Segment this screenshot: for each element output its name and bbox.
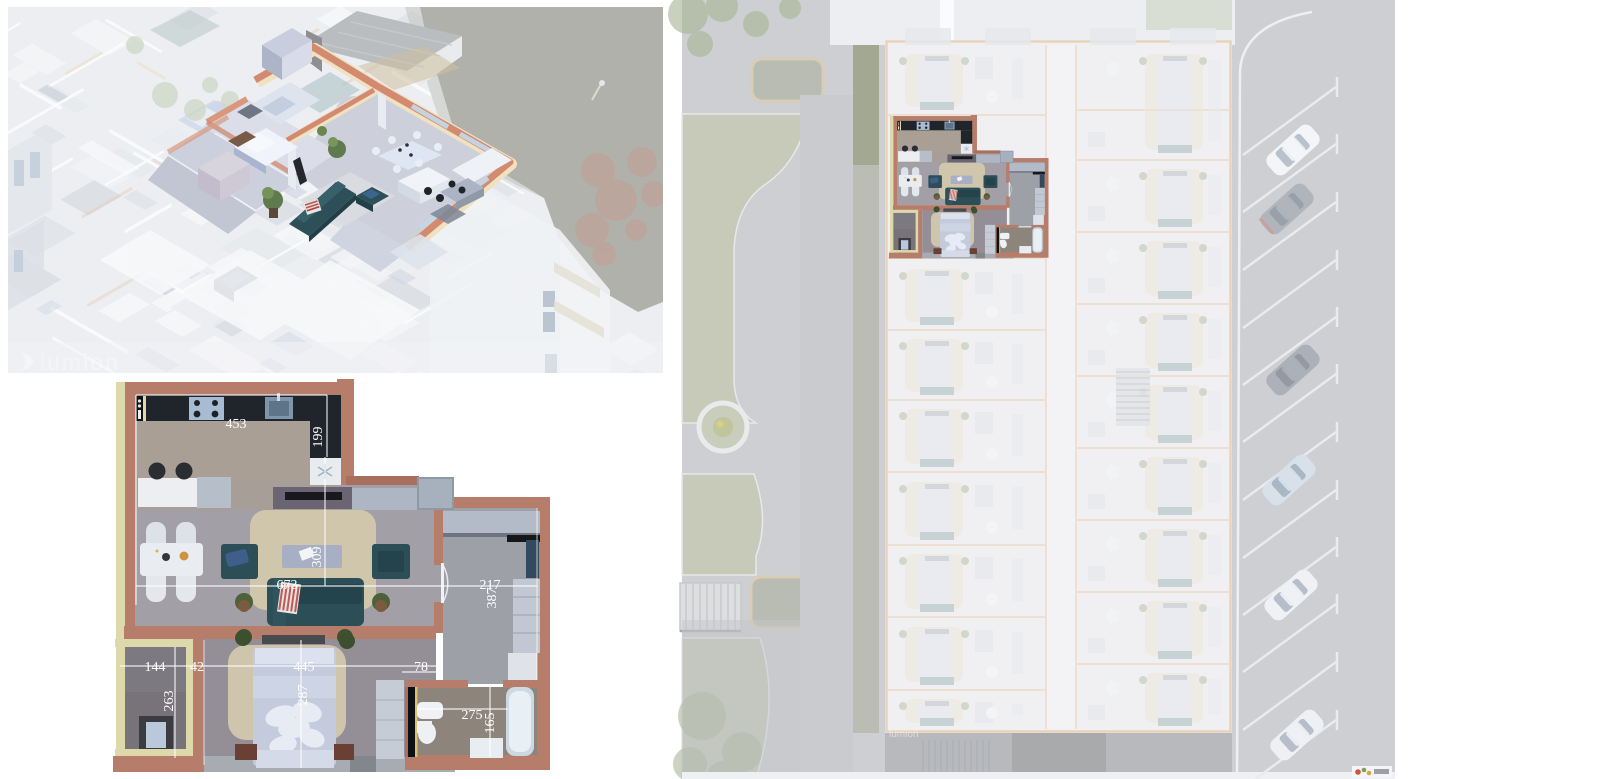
svg-text:42: 42: [190, 660, 204, 675]
svg-text:445: 445: [294, 660, 315, 675]
svg-text:263: 263: [162, 691, 177, 712]
svg-text:165: 165: [483, 713, 498, 734]
svg-text:lumion: lumion: [889, 729, 918, 740]
svg-text:78: 78: [414, 660, 428, 675]
svg-text:199: 199: [311, 427, 326, 448]
svg-text:387: 387: [485, 588, 500, 609]
svg-text:275: 275: [462, 708, 483, 723]
svg-text:453: 453: [226, 417, 247, 432]
svg-text:309: 309: [310, 547, 325, 568]
svg-text:287: 287: [296, 685, 311, 706]
svg-text:lumion: lumion: [40, 349, 120, 375]
svg-text:144: 144: [145, 660, 166, 675]
svg-text:673: 673: [277, 578, 298, 593]
